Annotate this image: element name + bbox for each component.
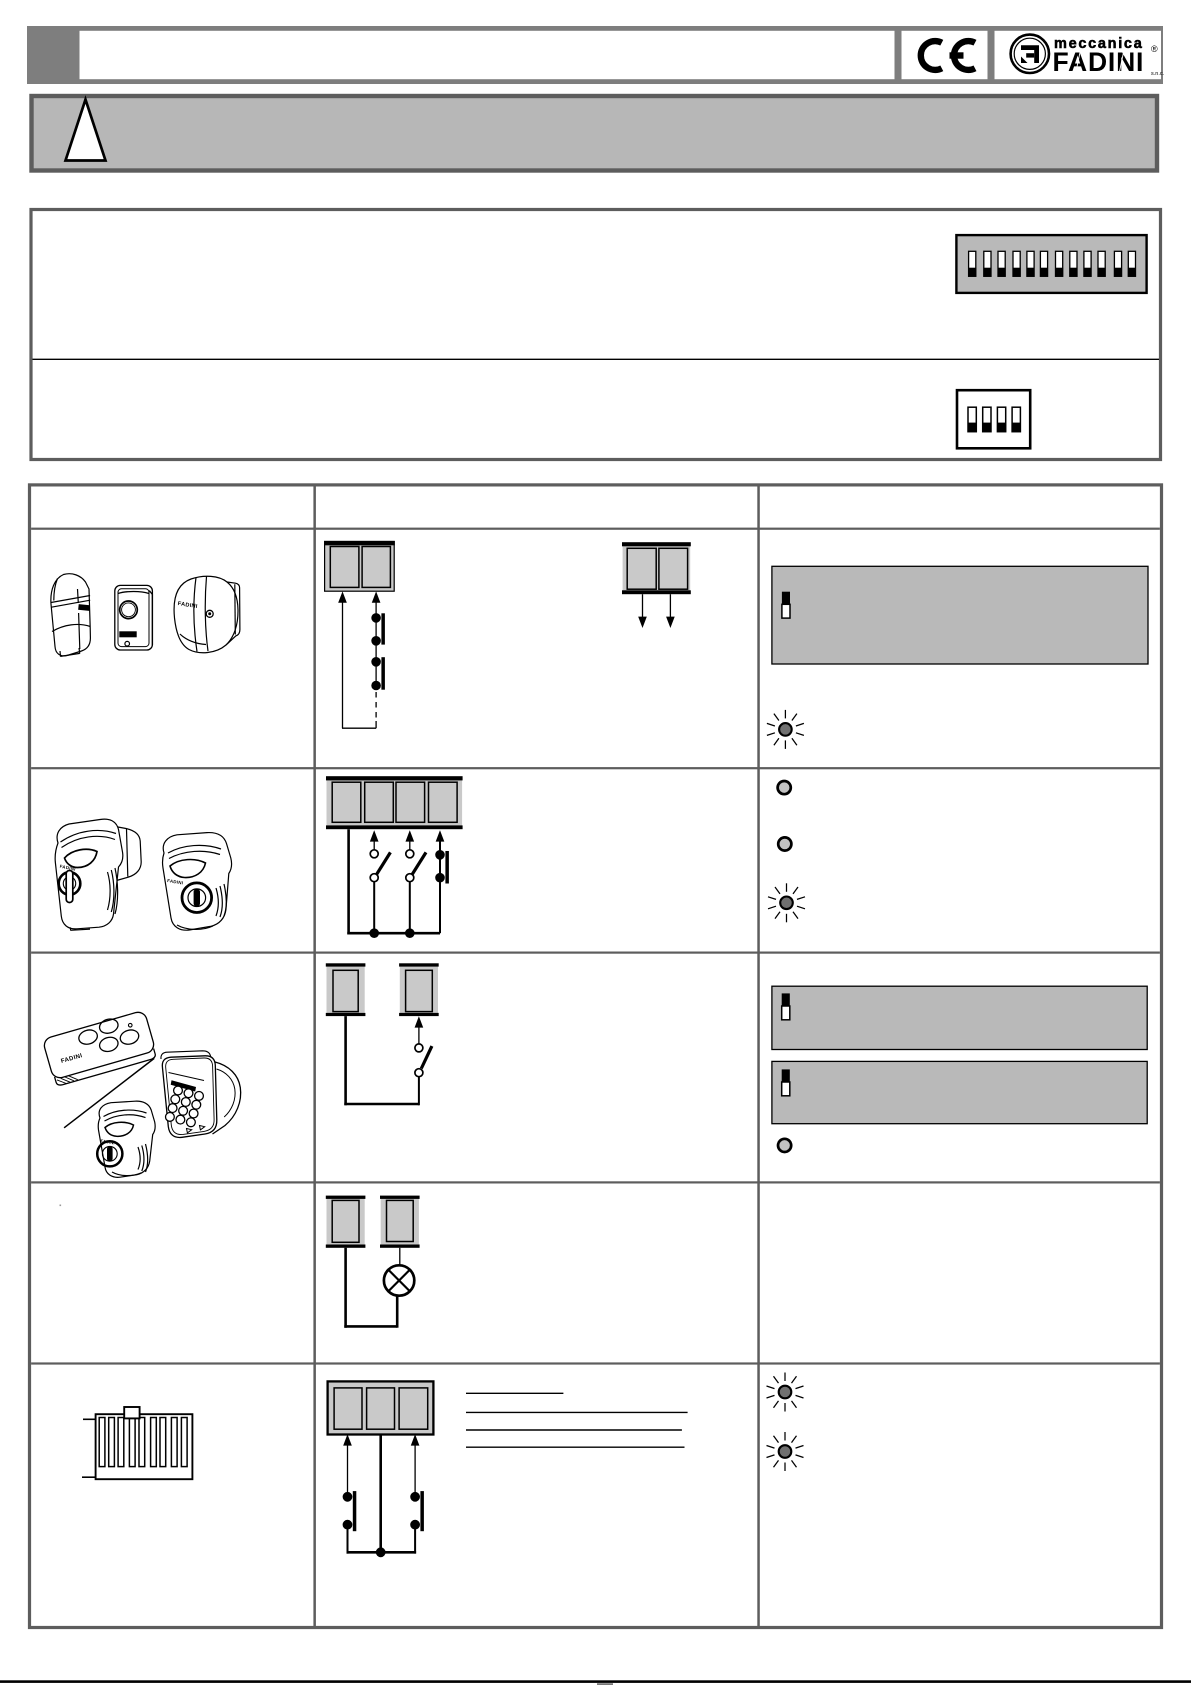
svg-text:®: ® bbox=[1151, 44, 1158, 54]
svg-text:FADINI: FADINI bbox=[1053, 47, 1145, 77]
svg-text:s.n.c.: s.n.c. bbox=[1151, 71, 1165, 77]
